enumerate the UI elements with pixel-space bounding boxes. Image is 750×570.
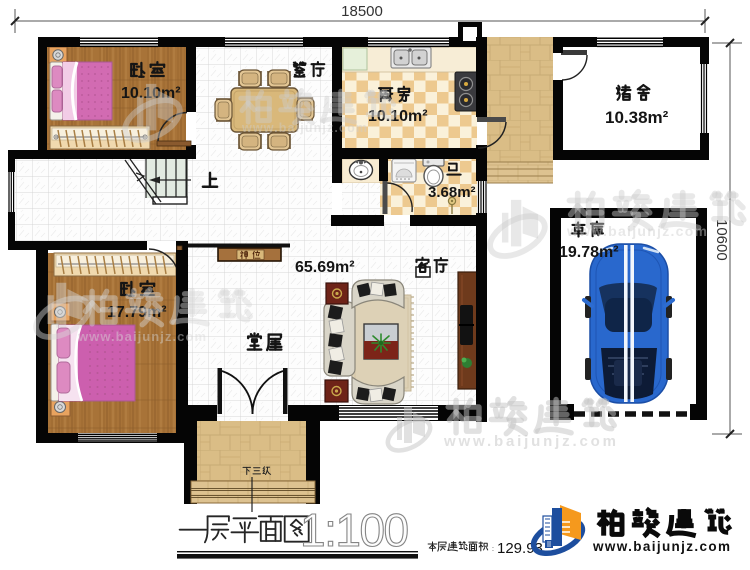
svg-text:10.38m²: 10.38m² <box>605 108 669 127</box>
svg-text:www.baijunjz.com: www.baijunjz.com <box>566 223 707 239</box>
svg-text:18500: 18500 <box>341 3 383 20</box>
svg-text:10600: 10600 <box>713 219 730 261</box>
svg-text::: : <box>492 546 494 553</box>
svg-text:www.baijunjz.com: www.baijunjz.com <box>77 329 206 344</box>
svg-text:www.baijunjz.com: www.baijunjz.com <box>241 121 367 135</box>
svg-text:www.baijunjz.com: www.baijunjz.com <box>592 539 730 554</box>
svg-text:19.78m²: 19.78m² <box>559 244 619 261</box>
svg-text:1:100: 1:100 <box>300 504 408 556</box>
svg-text:65.69m²: 65.69m² <box>295 259 355 276</box>
svg-text:3.68m²: 3.68m² <box>428 184 476 201</box>
